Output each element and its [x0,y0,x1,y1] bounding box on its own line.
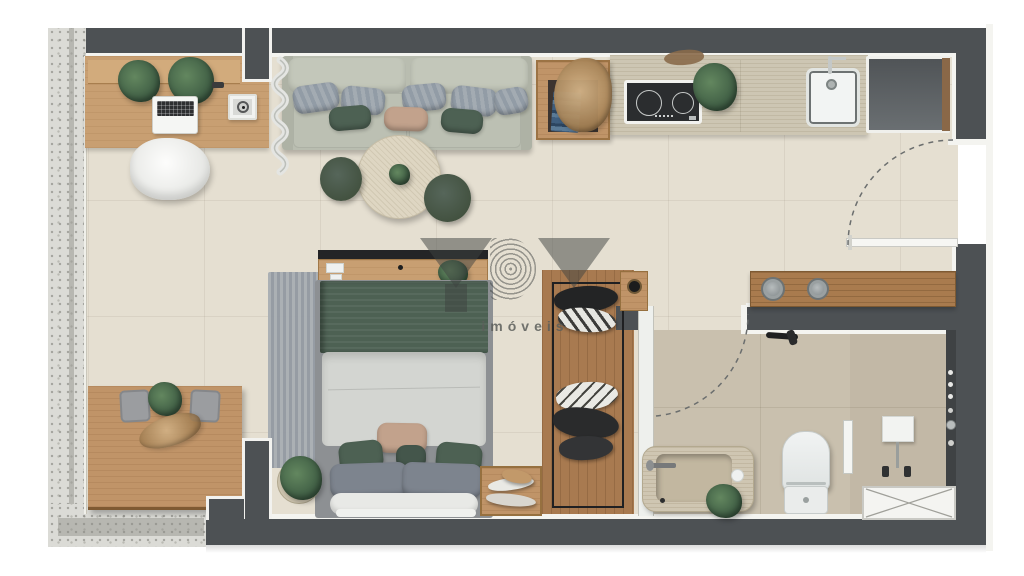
floorplan-stage: imóveis [0,0,1024,576]
bathroom-door-swing-arc [656,314,748,416]
watermark: imóveis [410,230,630,350]
watermark-y-right [538,238,610,288]
watermark-tagline: imóveis [455,318,595,334]
entry-door-swing-arc [848,140,953,245]
watermark-b [490,238,536,300]
service-grate-x [866,489,952,517]
watermark-y-left [420,238,492,288]
watermark-y-left-stem [445,284,467,312]
